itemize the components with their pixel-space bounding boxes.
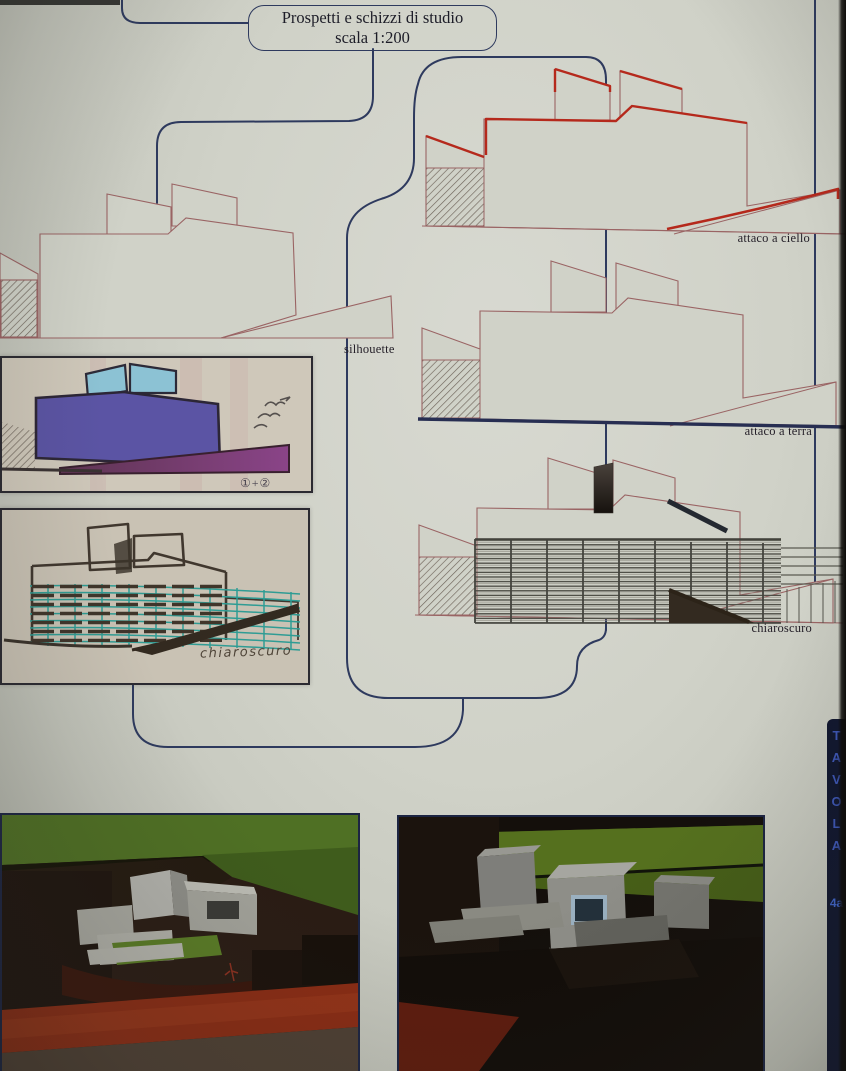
photo-edge-right — [838, 0, 846, 1071]
sketch-chiaroscuro-caption: chiaroscuro — [200, 643, 293, 661]
model-photo-right — [397, 815, 765, 1071]
louver-grid — [475, 539, 781, 623]
elevation-chiaroscuro — [415, 458, 843, 623]
sketch-sum-annotation: ①+② — [240, 476, 271, 491]
poster-photo: Prospetti e schizzi di studio scala 1:20… — [0, 0, 846, 1071]
title-line1: Prospetti e schizzi di studio — [282, 8, 463, 28]
connector-top-left — [122, 0, 248, 23]
tower-shadow — [594, 463, 613, 513]
label-chiaroscuro: chiaroscuro — [698, 621, 812, 636]
label-silhouette: silhouette — [344, 342, 395, 357]
sketch-color-drawing — [2, 358, 311, 491]
photo-edge-top — [0, 0, 120, 5]
elevation-attaco-ciello — [422, 69, 846, 234]
label-attaco-ciello: attaco a ciello — [698, 231, 810, 246]
title-line2: scala 1:200 — [335, 28, 410, 48]
sketch-color-frame — [0, 356, 313, 493]
label-attaco-terra: attaco a terra — [698, 424, 812, 439]
connector-title-to-silhouette — [157, 49, 373, 203]
model-photo-left — [0, 813, 360, 1071]
connector-bottom — [133, 685, 463, 747]
elevation-attaco-terra — [418, 261, 846, 427]
elevation-silhouette — [0, 184, 393, 338]
title-box: Prospetti e schizzi di studio scala 1:20… — [248, 5, 497, 51]
